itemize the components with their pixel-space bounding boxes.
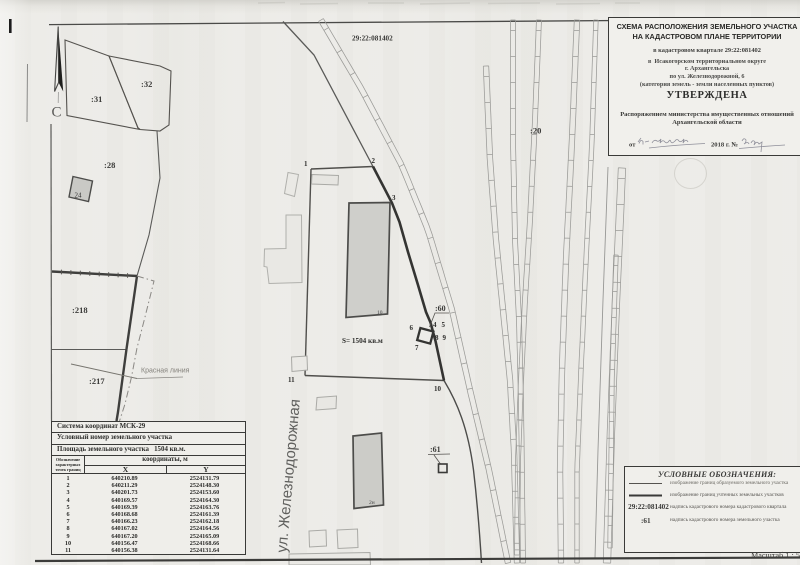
- svg-text:3: 3: [392, 194, 396, 202]
- svg-text::218: :218: [72, 305, 88, 315]
- svg-text::32: :32: [141, 79, 152, 89]
- svg-text:9: 9: [443, 334, 447, 342]
- svg-text:6: 6: [410, 324, 414, 332]
- svg-text::20: :20: [530, 126, 541, 136]
- svg-text::61: :61: [430, 445, 441, 454]
- svg-text:29:22:081402: 29:22:081402: [352, 35, 393, 43]
- svg-text:Красная линия: Красная линия: [141, 368, 190, 375]
- svg-text:4: 4: [433, 321, 437, 329]
- svg-text::28: :28: [104, 160, 115, 170]
- svg-text:24: 24: [75, 192, 83, 200]
- svg-text::60: :60: [435, 304, 446, 313]
- svg-text:2018 г. №: 2018 г. №: [711, 142, 738, 149]
- svg-text:2н: 2н: [369, 500, 375, 506]
- svg-text:1: 1: [304, 160, 308, 168]
- svg-text:от: от: [629, 142, 636, 149]
- svg-text::217: :217: [89, 376, 105, 386]
- svg-text:2: 2: [372, 157, 376, 165]
- svg-text:8: 8: [435, 334, 439, 342]
- svg-text:10: 10: [434, 385, 442, 393]
- svg-text:10: 10: [377, 310, 383, 316]
- svg-text:5: 5: [442, 321, 446, 329]
- svg-text:11: 11: [288, 376, 295, 384]
- svg-text:S= 1504 кв.м: S= 1504 кв.м: [342, 337, 383, 345]
- svg-text::31: :31: [91, 94, 102, 104]
- svg-text:7: 7: [415, 344, 419, 352]
- svg-text:ул. Железнодорожная: ул. Железнодорожная: [274, 398, 304, 553]
- svg-text:С: С: [52, 105, 62, 121]
